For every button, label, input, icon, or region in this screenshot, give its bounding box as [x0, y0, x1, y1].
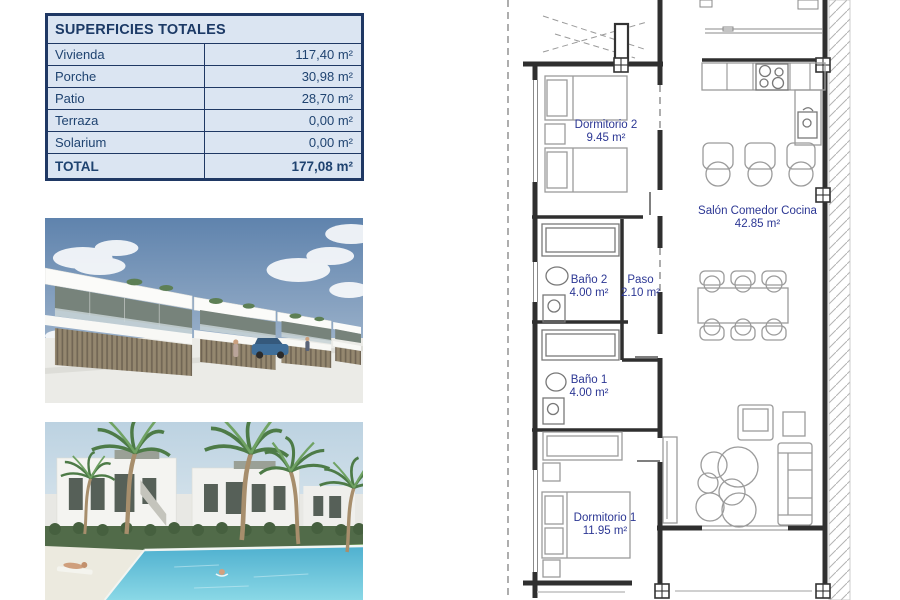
- total-label: TOTAL: [47, 154, 205, 180]
- stove-icon: [756, 64, 788, 90]
- photo-pool-render: [45, 422, 363, 600]
- table-row: Terraza 0,00 m²: [47, 110, 363, 132]
- dormitorio1-furniture: [542, 432, 630, 577]
- table-total-row: TOTAL 177,08 m²: [47, 154, 363, 180]
- row-label: Porche: [47, 66, 205, 88]
- row-value: 0,00 m²: [205, 132, 363, 154]
- row-value: 30,98 m²: [205, 66, 363, 88]
- side-table: [783, 412, 805, 436]
- bano2-fixtures: [542, 224, 619, 322]
- living-area: [663, 405, 812, 527]
- room-label-bano-2: Baño 2 4.00 m²: [560, 274, 618, 299]
- sink-icon: [798, 108, 817, 138]
- total-value: 177,08 m²: [205, 154, 363, 180]
- table-row: Solarium 0,00 m²: [47, 132, 363, 154]
- toilet: [543, 398, 564, 424]
- sofa: [778, 443, 812, 525]
- row-value: 0,00 m²: [205, 110, 363, 132]
- terrace-projection: [543, 16, 647, 58]
- row-label: Vivienda: [47, 44, 205, 66]
- row-label: Patio: [47, 88, 205, 110]
- bar-stools: [703, 143, 815, 186]
- row-value: 28,70 m²: [205, 88, 363, 110]
- surfaces-table: SUPERFICIES TOTALES Vivienda 117,40 m² P…: [45, 13, 364, 181]
- photo-exterior-render: [45, 218, 363, 403]
- kitchen: [700, 0, 825, 186]
- table-row: Patio 28,70 m²: [47, 88, 363, 110]
- dining-table: [698, 271, 788, 340]
- room-label-salon-comedor-cocina: Salón Comedor Cocina 42.85 m²: [690, 205, 825, 230]
- armchair: [738, 405, 773, 440]
- pool: [105, 546, 363, 600]
- table-row: Vivienda 117,40 m²: [47, 44, 363, 66]
- row-label: Solarium: [47, 132, 205, 154]
- room-label-dormitorio-2: Dormitorio 2 9.45 m²: [551, 119, 661, 144]
- room-label-dormitorio-1: Dormitorio 1 11.95 m²: [550, 512, 660, 537]
- row-value: 117,40 m²: [205, 44, 363, 66]
- floor-plan: Dormitorio 2 9.45 m² Salón Comedor Cocin…: [495, 0, 870, 600]
- toilet: [543, 295, 565, 322]
- table-title: SUPERFICIES TOTALES: [47, 15, 363, 44]
- rug-circles: [696, 447, 758, 527]
- sideboard: [663, 437, 677, 523]
- room-label-bano-1: Baño 1 4.00 m²: [560, 374, 618, 399]
- party-wall-hatch: [829, 0, 850, 600]
- room-label-paso: Paso 2.10 m²: [618, 274, 663, 299]
- table-header-row: SUPERFICIES TOTALES: [47, 15, 363, 44]
- apartment-block-left: [57, 450, 176, 532]
- table-row: Porche 30,98 m²: [47, 66, 363, 88]
- row-label: Terraza: [47, 110, 205, 132]
